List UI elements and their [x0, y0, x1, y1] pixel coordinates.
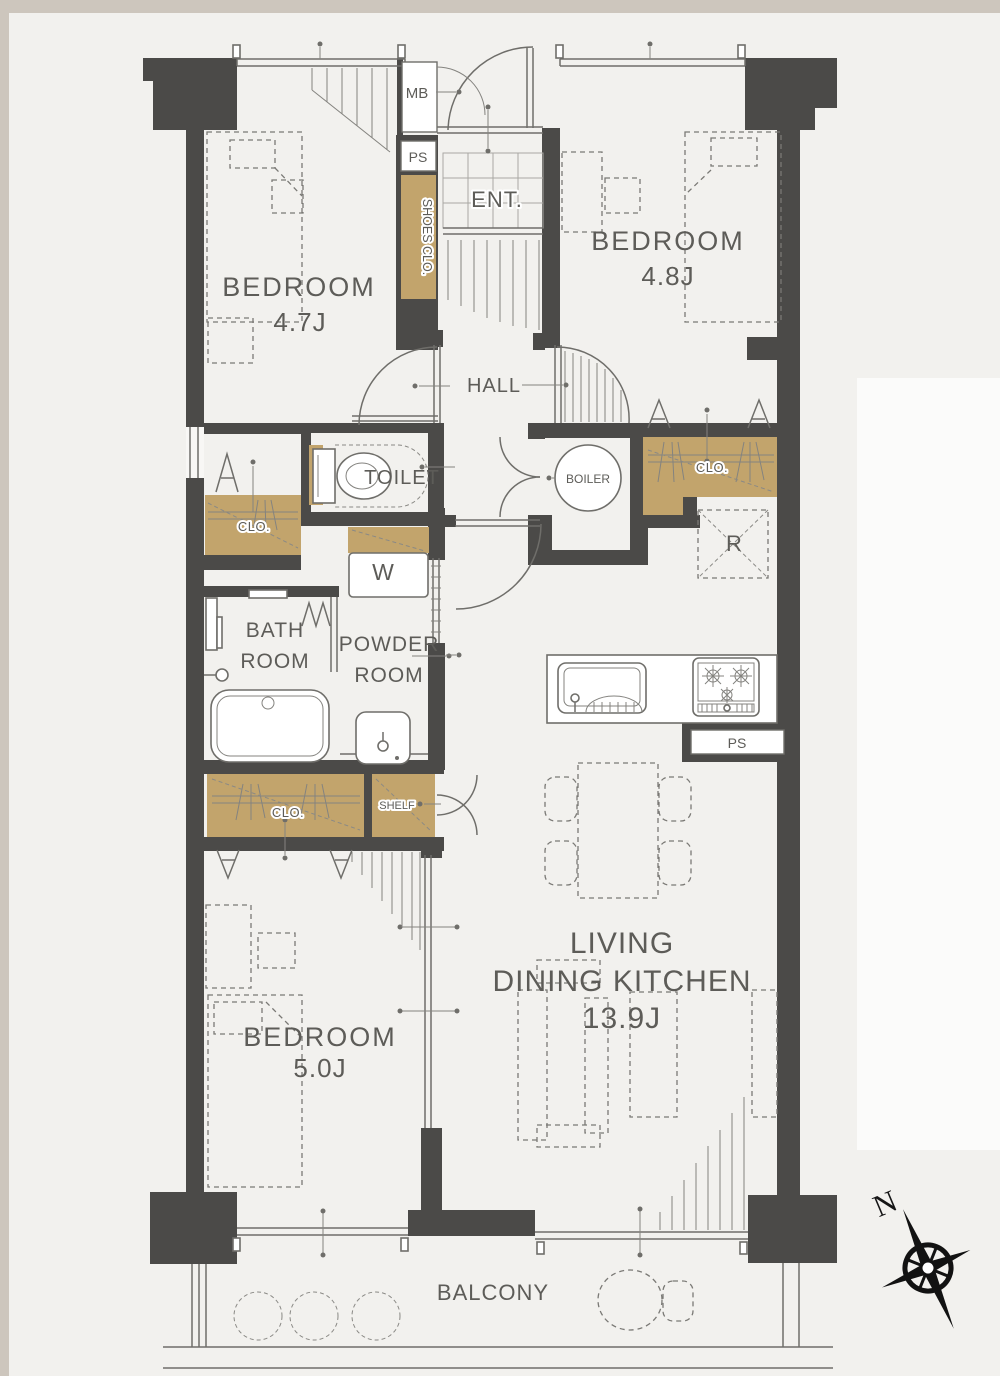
bedroom3-closet-label: CLO.: [272, 805, 304, 820]
bedroom1-label: BEDROOM: [222, 272, 376, 302]
refrigerator-label: R: [726, 531, 742, 556]
ldk-size: 13.9J: [583, 1002, 661, 1035]
bathroom-label-line2: ROOM: [240, 650, 309, 673]
bedroom1-closet-label: CLO.: [238, 519, 270, 534]
floor-plan-page: BEDROOM 4.7J BEDROOM 4.8J BEDROOM 5.0J L…: [0, 0, 1000, 1376]
ldk-label-line1: LIVING: [570, 927, 674, 960]
bedroom3-label: BEDROOM: [243, 1022, 397, 1052]
ldk-label-line2: DINING KITCHEN: [492, 965, 751, 998]
stove: [693, 658, 759, 716]
powder-label-line1: POWDER: [339, 633, 440, 656]
bedroom1-size: 4.7J: [273, 307, 326, 337]
mailbox-label: MB: [406, 85, 429, 102]
powder-label-line2: ROOM: [354, 664, 423, 687]
shelf-label: SHELF: [379, 800, 415, 812]
bedroom2-size: 4.8J: [641, 261, 694, 291]
bathtub: [211, 690, 329, 762]
pipe-shaft-top-label: PS: [409, 149, 428, 165]
entrance-label: ENT.: [471, 187, 523, 212]
window-left-wall: [186, 427, 204, 478]
toilet-label: TOILET: [364, 467, 440, 489]
boiler-label: BOILER: [566, 472, 610, 486]
balcony-label: BALCONY: [437, 1280, 549, 1305]
bedroom2-label: BEDROOM: [591, 226, 745, 256]
hall-closet-label: CLO.: [696, 460, 728, 475]
pipe-shaft-kitchen-label: PS: [728, 735, 747, 751]
floor-plan-drawing: BEDROOM 4.7J BEDROOM 4.8J BEDROOM 5.0J L…: [0, 0, 1000, 1376]
washer-label: W: [372, 559, 394, 585]
shoes-closet-label: SHOES CLO.: [420, 199, 434, 275]
bathroom-label-line1: BATH: [246, 619, 304, 642]
bedroom3-size: 5.0J: [293, 1053, 346, 1083]
kitchen-counter: [547, 655, 777, 723]
hall-label: HALL: [467, 375, 521, 397]
